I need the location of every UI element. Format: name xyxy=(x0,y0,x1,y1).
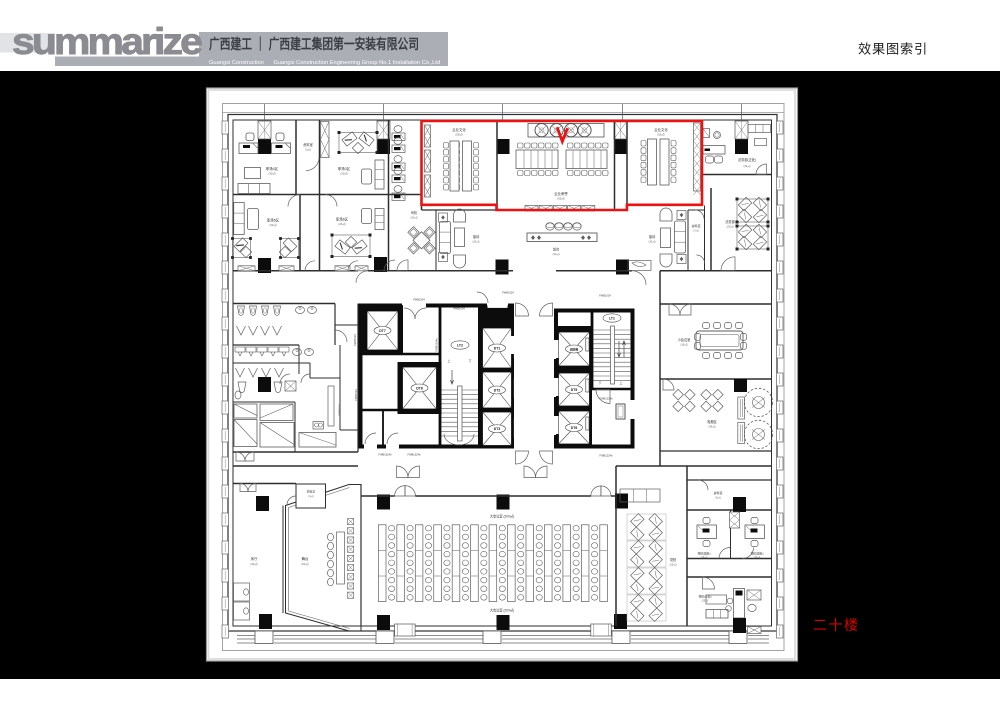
svg-text:FWB1524: FWB1524 xyxy=(353,334,357,346)
svg-text:(45㎡): (45㎡) xyxy=(709,425,716,429)
svg-text:(30㎡): (30㎡) xyxy=(649,240,656,244)
svg-text:资料室: 资料室 xyxy=(691,223,700,228)
svg-text:调音室: 调音室 xyxy=(307,490,316,494)
svg-text:法务部(正处): 法务部(正处) xyxy=(738,157,756,162)
svg-text:FWB1524: FWB1524 xyxy=(354,389,358,401)
svg-text:吸烟区: 吸烟区 xyxy=(707,419,717,424)
svg-text:职场4区: 职场4区 xyxy=(266,166,279,171)
svg-text:(30㎡): (30㎡) xyxy=(744,164,751,168)
svg-text:FWB1024: FWB1024 xyxy=(453,307,465,311)
svg-text:(20㎡): (20㎡) xyxy=(473,240,480,244)
svg-text:企业文化: 企业文化 xyxy=(654,127,668,132)
svg-text:党校(副处): 党校(副处) xyxy=(697,552,710,556)
svg-text:资料室: 资料室 xyxy=(303,142,313,147)
svg-text:广西建工 ｜ 广西建工集团第一安装有限公司: 广西建工 ｜ 广西建工集团第一安装有限公司 xyxy=(209,36,419,52)
svg-text:司机: 司机 xyxy=(411,210,418,215)
svg-text:企业文化: 企业文化 xyxy=(452,127,466,132)
svg-text:(5㎡): (5㎡) xyxy=(715,496,721,500)
svg-text:DT6: DT6 xyxy=(571,426,578,430)
svg-text:LT2: LT2 xyxy=(457,343,463,347)
svg-text:FWB1024b: FWB1024b xyxy=(408,453,422,457)
svg-text:接待: 接待 xyxy=(649,234,656,239)
svg-text:资料室: 资料室 xyxy=(713,490,722,495)
svg-text:下: 下 xyxy=(468,359,471,363)
svg-text:职场3区: 职场3区 xyxy=(338,166,351,171)
svg-text:(3㎡): (3㎡) xyxy=(305,148,311,152)
svg-text:(20㎡): (20㎡) xyxy=(338,222,345,226)
svg-text:前台: 前台 xyxy=(553,247,559,252)
svg-text:DT8: DT8 xyxy=(416,386,423,390)
svg-text:(10㎡): (10㎡) xyxy=(553,252,560,256)
svg-text:FWB1024a: FWB1024a xyxy=(435,338,439,352)
svg-text:DT7: DT7 xyxy=(379,329,386,333)
svg-text:(16㎡): (16㎡) xyxy=(681,343,688,347)
svg-text:(7㎡): (7㎡) xyxy=(693,229,699,233)
svg-text:FWB1524: FWB1524 xyxy=(338,404,342,416)
svg-text:大会议室 (200㎡): 大会议室 (200㎡) xyxy=(490,608,514,613)
svg-text:序厅: 序厅 xyxy=(251,556,258,561)
svg-text:上: 上 xyxy=(619,380,622,385)
svg-text:Guangxi Construction Guan: Guangxi Construction Guangxi Constructio… xyxy=(209,60,440,66)
svg-text:FWB1524: FWB1524 xyxy=(413,298,425,302)
svg-text:FWB1224b: FWB1224b xyxy=(600,454,614,458)
svg-text:(20㎡): (20㎡) xyxy=(340,172,347,176)
svg-text:法务部: 法务部 xyxy=(725,219,735,224)
svg-text:DT3: DT3 xyxy=(494,427,501,431)
svg-text:(30㎡): (30㎡) xyxy=(268,172,275,176)
svg-text:FWB1524: FWB1524 xyxy=(502,291,514,295)
svg-text:小会议室: 小会议室 xyxy=(678,337,691,342)
svg-text:(50㎡): (50㎡) xyxy=(455,133,462,137)
svg-text:(20㎡): (20㎡) xyxy=(411,216,418,220)
svg-text:二十楼: 二十楼 xyxy=(813,617,860,633)
svg-text:下: 下 xyxy=(598,381,601,385)
svg-text:消防梯: 消防梯 xyxy=(569,347,579,351)
svg-text:职场5区: 职场5区 xyxy=(267,218,280,223)
svg-text:企业荣誉: 企业荣誉 xyxy=(554,191,568,196)
svg-text:(60㎡): (60㎡) xyxy=(301,562,308,566)
svg-text:(40㎡): (40㎡) xyxy=(250,562,257,566)
svg-text:(65㎡): (65㎡) xyxy=(557,197,564,201)
svg-text:(25㎡): (25㎡) xyxy=(670,563,677,567)
svg-text:大会议室 (200㎡): 大会议室 (200㎡) xyxy=(490,514,514,519)
svg-text:LT1: LT1 xyxy=(609,316,615,320)
svg-text:接待: 接待 xyxy=(473,234,480,239)
svg-text:职场6区: 职场6区 xyxy=(336,217,349,222)
svg-text:FWB1224b: FWB1224b xyxy=(600,397,614,401)
svg-text:(30㎡): (30㎡) xyxy=(269,223,276,227)
svg-text:DT2: DT2 xyxy=(494,388,501,392)
svg-text:DT5: DT5 xyxy=(571,388,578,392)
svg-text:FWB1024: FWB1024 xyxy=(599,294,611,298)
svg-text:DT1: DT1 xyxy=(494,346,501,350)
svg-text:上: 上 xyxy=(447,358,450,363)
svg-text:(20㎡): (20㎡) xyxy=(727,225,734,229)
svg-text:舞台: 舞台 xyxy=(302,556,309,561)
svg-text:党校: 党校 xyxy=(670,557,677,562)
svg-text:FWB1024b: FWB1024b xyxy=(379,453,393,457)
svg-text:效果图索引: 效果图索引 xyxy=(858,42,928,57)
svg-text:summarize: summarize xyxy=(12,21,202,62)
svg-text:(50㎡): (50㎡) xyxy=(657,133,664,137)
